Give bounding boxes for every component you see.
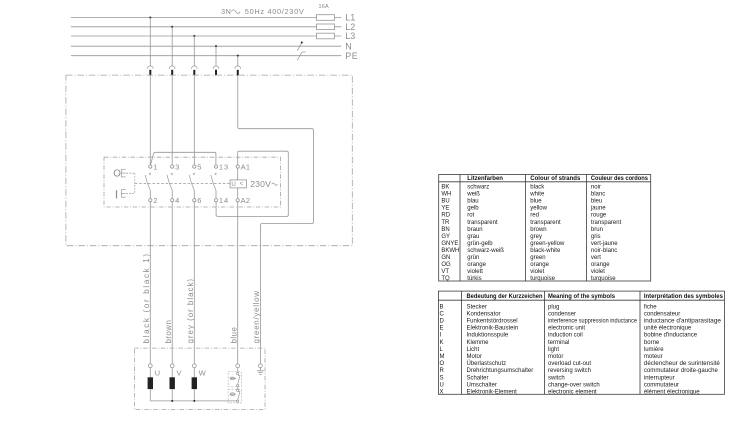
- svg-text:Kondensator: Kondensator: [467, 311, 501, 317]
- svg-text:brown: brown: [164, 320, 173, 344]
- svg-text:grau: grau: [467, 234, 479, 240]
- svg-text:black: black: [530, 185, 545, 191]
- svg-text:condenser: condenser: [548, 311, 576, 317]
- svg-text:BK: BK: [441, 185, 449, 191]
- svg-text:Litzenfarben: Litzenfarben: [467, 176, 503, 182]
- svg-text:Umschalter: Umschalter: [467, 382, 497, 388]
- svg-text:vert: vert: [591, 255, 601, 261]
- svg-text:noir-blanc: noir-blanc: [591, 248, 617, 254]
- svg-text:W: W: [199, 369, 207, 378]
- svg-text:lumière: lumière: [644, 347, 664, 353]
- svg-text:6: 6: [197, 196, 201, 205]
- svg-text:orange: orange: [591, 262, 610, 268]
- svg-text:Induktionsspule: Induktionsspule: [467, 333, 509, 339]
- svg-text:V: V: [177, 369, 182, 378]
- svg-text:turquoise: turquoise: [530, 276, 555, 282]
- svg-text:transparent: transparent: [467, 220, 498, 226]
- svg-text:light: light: [548, 347, 559, 353]
- svg-text:rot: rot: [467, 213, 474, 219]
- svg-text:Motor: Motor: [467, 354, 482, 360]
- svg-text:Drehrichtungsumschalter: Drehrichtungsumschalter: [467, 368, 534, 374]
- svg-text:OG: OG: [441, 262, 451, 268]
- svg-text:230V: 230V: [250, 179, 271, 189]
- svg-text:violet: violet: [530, 269, 544, 275]
- svg-text:B: B: [440, 304, 444, 310]
- svg-text:50Hz 400/230V: 50Hz 400/230V: [245, 7, 304, 16]
- svg-text:bleu: bleu: [591, 199, 602, 205]
- svg-text:GY: GY: [441, 234, 450, 240]
- svg-text:Stecker: Stecker: [467, 304, 487, 310]
- svg-text:Elektronik-Element: Elektronik-Element: [467, 390, 518, 396]
- svg-text:commutateur droite-gauche: commutateur droite-gauche: [644, 368, 719, 374]
- svg-text:vert-jaune: vert-jaune: [591, 241, 618, 247]
- svg-text:RD: RD: [441, 213, 450, 219]
- svg-text:Überlastschutz: Überlastschutz: [467, 360, 507, 367]
- svg-text:türkis: türkis: [467, 276, 481, 282]
- svg-text:1: 1: [153, 163, 157, 172]
- svg-text:schwarz: schwarz: [467, 185, 489, 191]
- svg-text:BN: BN: [441, 227, 449, 233]
- svg-text:déclencheur de surintensité: déclencheur de surintensité: [644, 361, 721, 367]
- svg-text:red: red: [530, 213, 539, 219]
- svg-text:3: 3: [175, 163, 179, 172]
- svg-text:bobine d'inductance: bobine d'inductance: [644, 333, 698, 339]
- svg-text:Funkentstördrossel: Funkentstördrossel: [467, 319, 518, 325]
- svg-text:schwarz-weiß: schwarz-weiß: [467, 248, 504, 254]
- svg-text:4: 4: [175, 196, 179, 205]
- svg-text:TQ: TQ: [441, 276, 450, 282]
- svg-text:PE: PE: [345, 51, 358, 61]
- svg-text:TR: TR: [441, 220, 450, 226]
- svg-text:L: L: [440, 347, 444, 353]
- svg-text:A2: A2: [241, 196, 251, 205]
- svg-text:overload cut-out: overload cut-out: [548, 361, 591, 367]
- svg-text:black-white: black-white: [530, 248, 561, 254]
- svg-text:N: N: [345, 41, 352, 51]
- svg-text:Bedeutung der Kurzzeichen: Bedeutung der Kurzzeichen: [467, 294, 543, 300]
- svg-text:Meaning of the symbols: Meaning of the symbols: [548, 294, 616, 300]
- svg-text:unité électronique: unité électronique: [644, 326, 692, 332]
- svg-text:reversing switch: reversing switch: [548, 368, 591, 374]
- svg-text:I: I: [440, 333, 442, 339]
- svg-text:<: <: [240, 181, 244, 188]
- svg-text:commutateur: commutateur: [644, 382, 679, 388]
- svg-text:13: 13: [219, 163, 229, 172]
- svg-text:M: M: [440, 354, 445, 360]
- svg-text:GNYE: GNYE: [441, 241, 458, 247]
- svg-text:switch: switch: [548, 375, 565, 381]
- svg-text:GN: GN: [441, 255, 450, 261]
- svg-text:fiche: fiche: [644, 304, 657, 310]
- svg-text:inductance d'antiparasitage: inductance d'antiparasitage: [644, 319, 722, 325]
- svg-text:blue: blue: [530, 199, 542, 205]
- svg-text:C: C: [440, 311, 445, 317]
- svg-text:weiß: weiß: [466, 192, 480, 198]
- svg-text:transparent: transparent: [591, 220, 622, 226]
- svg-text:VT: VT: [441, 269, 449, 275]
- svg-text:moteur: moteur: [644, 354, 663, 360]
- svg-text:plug: plug: [548, 304, 559, 310]
- svg-text:blanc: blanc: [591, 192, 605, 198]
- svg-text:grün: grün: [467, 255, 479, 261]
- svg-text:16A: 16A: [318, 4, 328, 10]
- svg-text:BU: BU: [441, 199, 449, 205]
- svg-text:K: K: [440, 340, 444, 346]
- svg-text:R: R: [440, 368, 445, 374]
- svg-text:U: U: [231, 181, 235, 188]
- svg-text:black (or black 1): black (or black 1): [142, 254, 151, 344]
- svg-text:14: 14: [219, 196, 229, 205]
- svg-text:D: D: [440, 319, 445, 325]
- svg-text:U: U: [155, 369, 160, 378]
- svg-text:brun: brun: [591, 227, 603, 233]
- svg-text:noir: noir: [591, 185, 601, 191]
- svg-text:5: 5: [197, 163, 201, 172]
- svg-text:violett: violett: [467, 269, 483, 275]
- svg-text:orange: orange: [530, 262, 549, 268]
- svg-text:induction coil: induction coil: [548, 333, 583, 339]
- svg-text:Elektronik-Baustein: Elektronik-Baustein: [467, 326, 519, 332]
- svg-text:orange: orange: [467, 262, 486, 268]
- svg-text:green/yellow: green/yellow: [252, 291, 261, 344]
- svg-text:gelb: gelb: [467, 206, 479, 212]
- svg-text:change-over switch: change-over switch: [548, 382, 600, 388]
- svg-text:yellow: yellow: [530, 206, 547, 212]
- svg-text:X: X: [440, 390, 444, 396]
- svg-text:jaune: jaune: [590, 206, 606, 212]
- svg-text:rouge: rouge: [591, 213, 607, 219]
- svg-text:white: white: [529, 192, 545, 198]
- svg-text:turquoise: turquoise: [591, 276, 616, 282]
- svg-text:blau: blau: [467, 199, 478, 205]
- svg-text:green-yellow: green-yellow: [530, 241, 565, 247]
- svg-text:blue: blue: [229, 327, 238, 344]
- svg-text:O: O: [113, 169, 121, 180]
- svg-text:interrupteur: interrupteur: [644, 375, 675, 381]
- svg-text:electronic element: electronic element: [548, 390, 597, 396]
- svg-text:U: U: [440, 382, 444, 388]
- svg-text:electronic unit: electronic unit: [548, 326, 585, 332]
- svg-text:brown: brown: [530, 227, 546, 233]
- svg-text:grün-gelb: grün-gelb: [467, 241, 493, 247]
- svg-text:grey: grey: [530, 234, 542, 240]
- svg-text:Licht: Licht: [467, 347, 480, 353]
- svg-text:gris: gris: [591, 234, 601, 240]
- svg-text:A1: A1: [241, 163, 251, 172]
- svg-text:condensateur: condensateur: [644, 311, 680, 317]
- svg-text:grey (or black): grey (or black): [186, 279, 195, 344]
- svg-text:transparent: transparent: [530, 220, 561, 226]
- svg-text:Colour of strands: Colour of strands: [530, 176, 581, 182]
- svg-text:BKWH: BKWH: [441, 248, 459, 254]
- svg-text:Couleur des cordons: Couleur des cordons: [591, 176, 649, 182]
- svg-text:YE: YE: [441, 206, 449, 212]
- svg-text:motor: motor: [548, 354, 563, 360]
- svg-text:WH: WH: [441, 192, 451, 198]
- svg-text:2: 2: [153, 196, 157, 205]
- svg-text:E: E: [440, 326, 444, 332]
- svg-text:terminal: terminal: [548, 340, 569, 346]
- svg-text:3N: 3N: [221, 7, 231, 16]
- svg-text:Klemme: Klemme: [467, 340, 490, 346]
- svg-text:élément électronique: élément électronique: [644, 390, 700, 396]
- svg-text:L3: L3: [345, 31, 355, 41]
- svg-text:O: O: [440, 361, 445, 367]
- svg-text:Schalter: Schalter: [467, 375, 489, 381]
- svg-text:green: green: [530, 255, 545, 261]
- svg-text:violet: violet: [591, 269, 605, 275]
- svg-text:braun: braun: [467, 227, 482, 233]
- svg-text:Interprétation des symboles: Interprétation des symboles: [644, 294, 724, 300]
- svg-text:S: S: [440, 375, 444, 381]
- svg-text:interference suppression induc: interference suppression inductance: [548, 319, 638, 325]
- svg-text:borne: borne: [644, 340, 660, 346]
